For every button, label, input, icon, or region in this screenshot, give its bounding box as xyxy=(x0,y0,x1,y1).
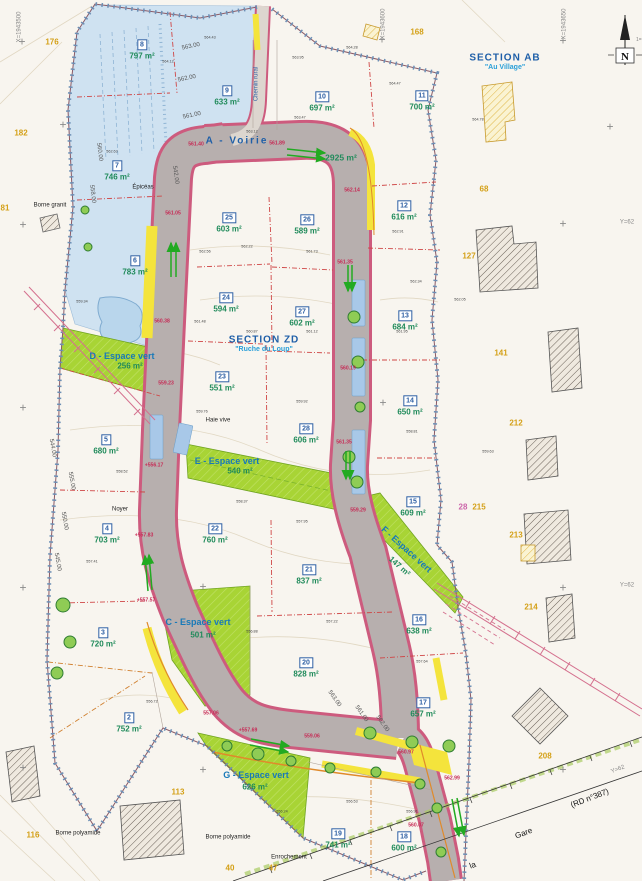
scale-note: 1=52 xyxy=(636,37,642,43)
building-hatched xyxy=(476,226,538,292)
building-hatched xyxy=(120,800,184,860)
building-hatched xyxy=(512,688,568,744)
building-hatched xyxy=(6,746,40,802)
north-arrow: N 1=52 xyxy=(608,15,642,65)
north-arrow-needle xyxy=(620,15,630,40)
building-hatched xyxy=(546,594,575,642)
building-hatched xyxy=(40,214,60,232)
building-hatched xyxy=(548,328,582,392)
roads xyxy=(158,6,446,881)
building-hatched xyxy=(521,545,535,561)
espace-vert-E xyxy=(186,444,338,510)
subdivision-plan: N 1=52 2752 m²3720 m²4703 m²5680 m²6783 … xyxy=(0,0,642,881)
building-hatched xyxy=(526,436,558,480)
building-hatched xyxy=(482,82,515,142)
plan-drawing: N 1=52 xyxy=(0,0,642,881)
building-hatched xyxy=(363,24,380,40)
north-label: N xyxy=(621,51,629,63)
